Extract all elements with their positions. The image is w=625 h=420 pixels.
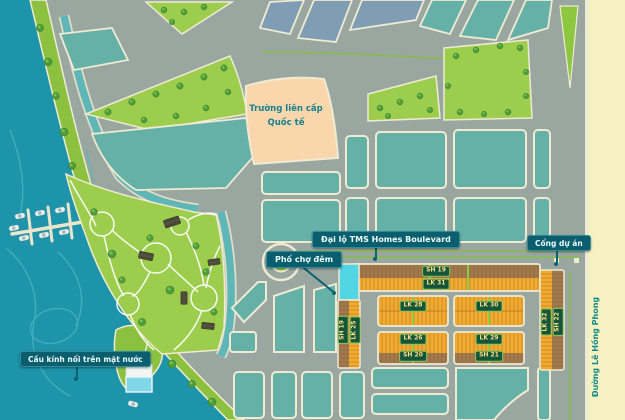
night-market-leader-dot [332,291,336,295]
glass-bridge-label: Cầu kính nối trên mặt nước [20,351,151,367]
project-gate-label: Cổng dự án [527,235,591,251]
right-street-name: Đường Lê Hồng Phong [591,282,605,412]
plot-tag-lk26: LK 26 [400,334,427,345]
plot-tag-sh22: SH 22 [553,308,564,336]
plot-tag-lk25: LK 25 [350,317,361,344]
highlight-cyan-block [339,264,359,300]
plot-tag-lk31: LK 31 [423,279,450,290]
plot-tag-sh19-left: SH 19 [338,316,349,344]
school-label-line2: Quốc tế [238,117,334,131]
glass-bridge-leader-dot [74,377,78,381]
plot-tag-sh20: SH 20 [399,351,427,362]
night-market-label: Phố chợ đêm [266,251,342,268]
plot-tag-lk32: LK 32 [541,309,552,336]
school-label: Trường liên cấp Quốc tế [238,103,334,130]
plot-tag-sh21: SH 21 [475,351,503,362]
boulevard-label: Đại lộ TMS Homes Boulevard [312,231,460,248]
boulevard-leader-dot [373,257,377,261]
plot-tag-lk28: LK 28 [400,301,427,312]
plot-tag-lk30: LK 30 [476,301,503,312]
plot-tag-sh19: SH 19 [422,266,450,277]
plot-tag-lk29: LK 29 [476,334,503,345]
school-label-line1: Trường liên cấp [238,103,334,117]
project-gate-leader-dot [554,262,558,266]
masterplan-map: Trường liên cấp Quốc tế Đại lộ TMS Homes… [0,0,625,420]
